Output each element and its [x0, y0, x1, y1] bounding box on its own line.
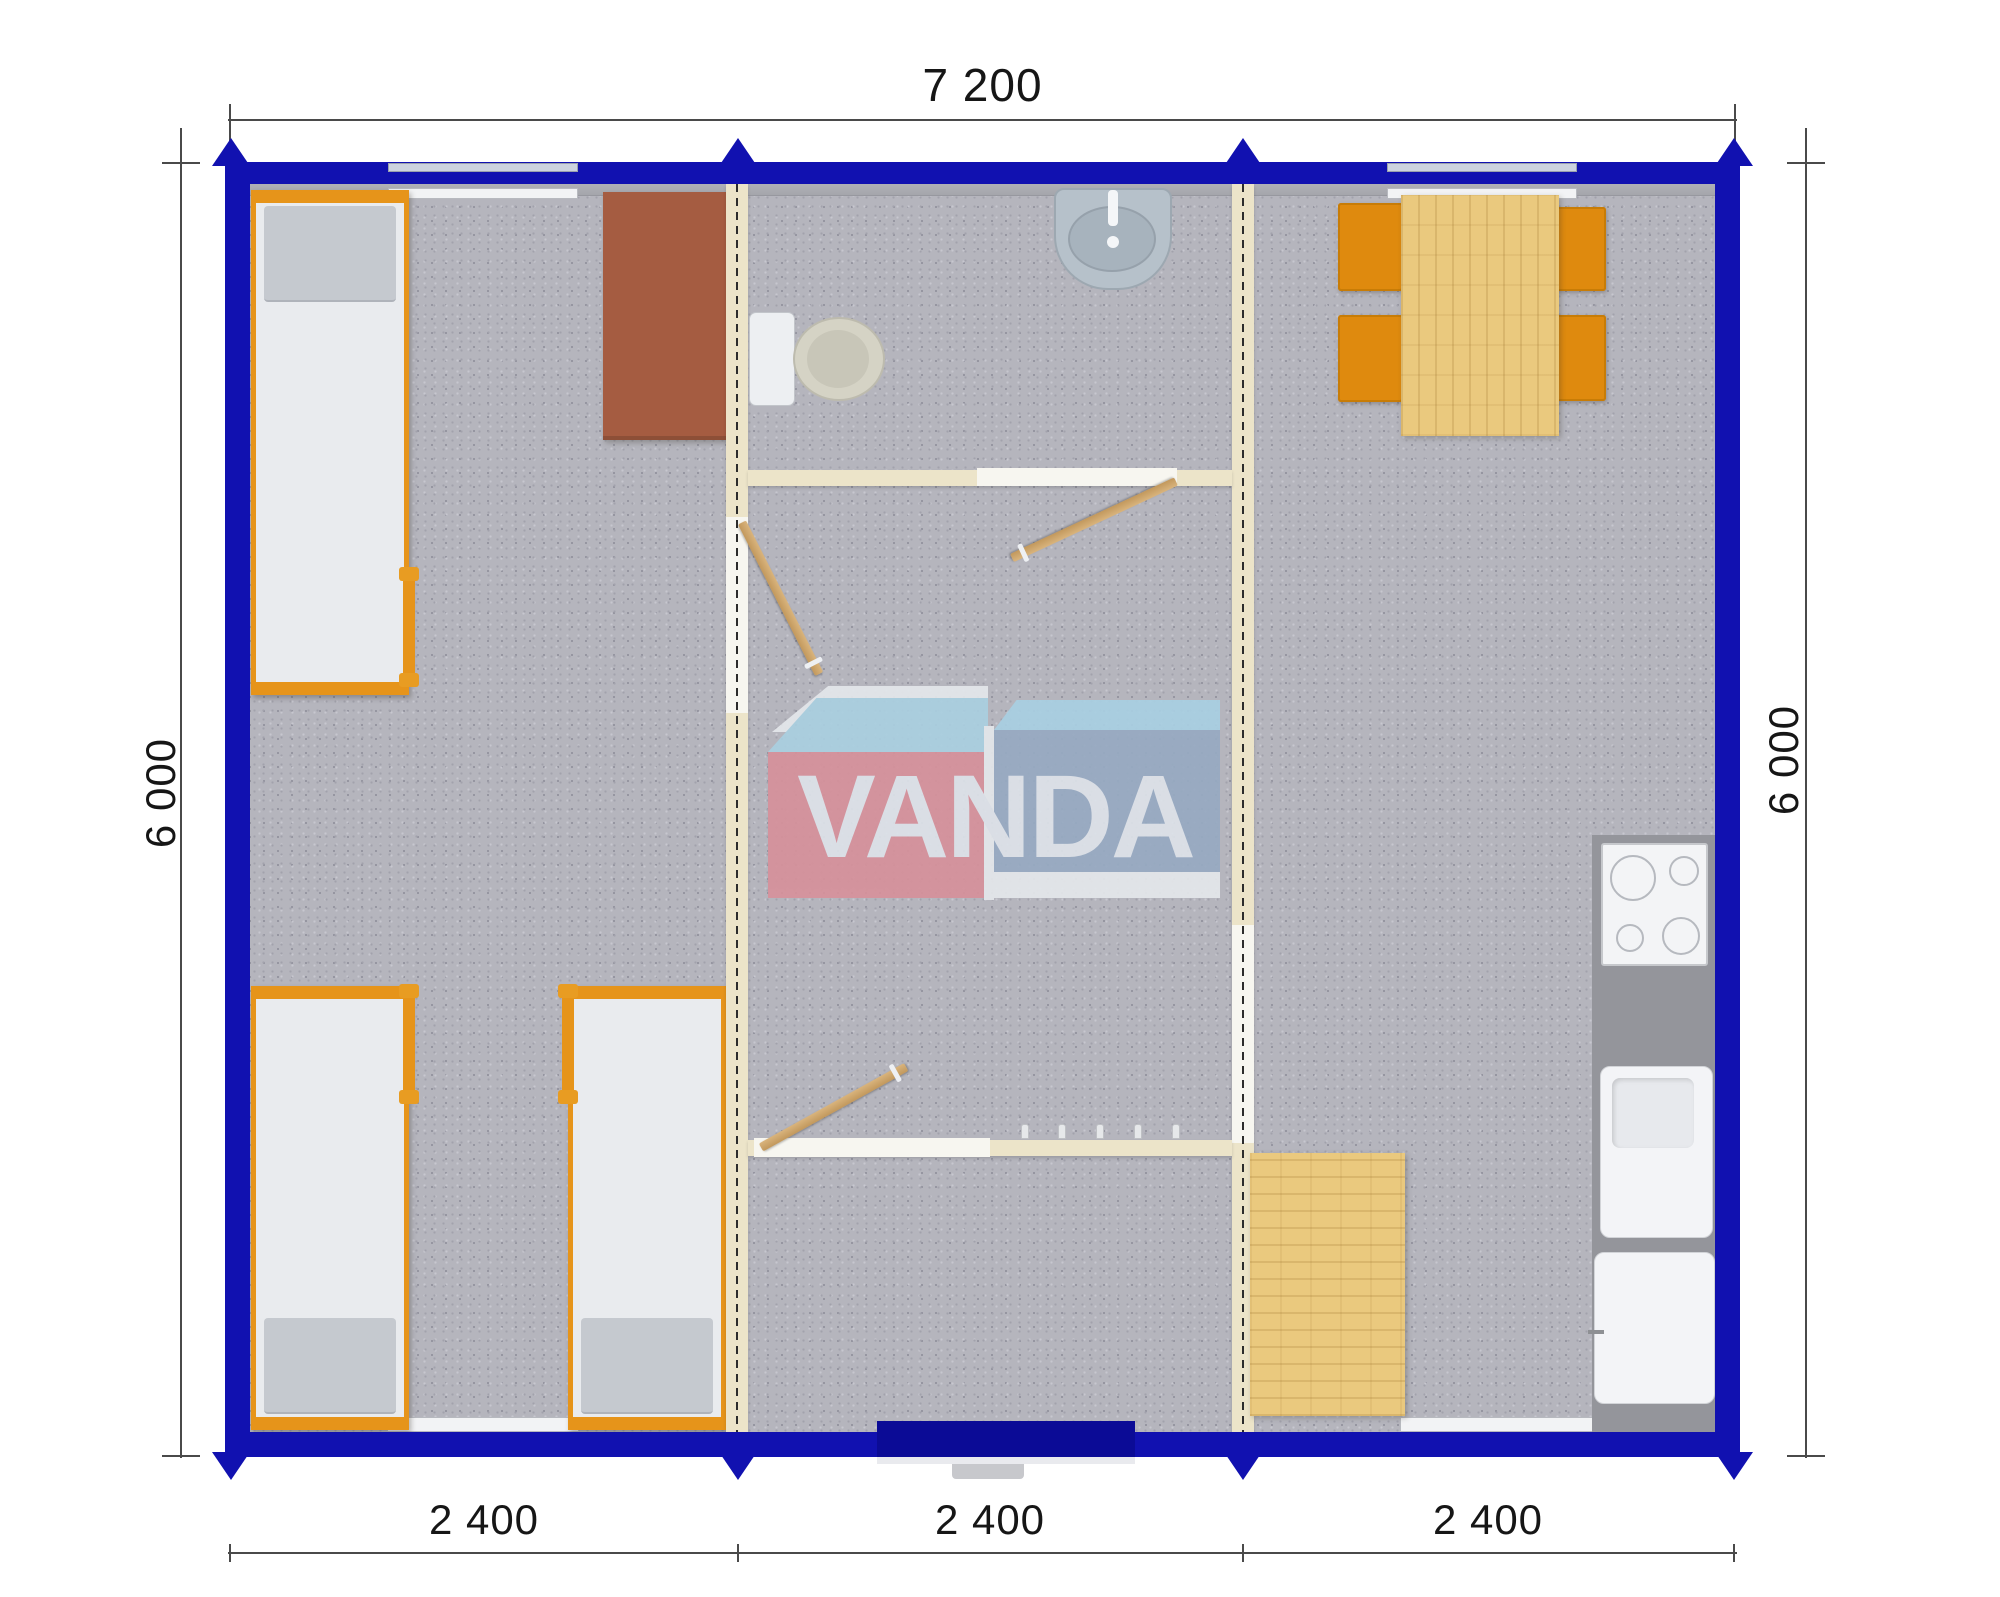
- logo-box-top-left: [768, 698, 988, 752]
- joint-arrow-bottom: [1224, 1452, 1262, 1480]
- coat-hook-icon: [1058, 1124, 1066, 1139]
- dim-tick-b3: [1242, 1544, 1244, 1562]
- chair-icon: [1338, 203, 1403, 291]
- bathroom-door-opening: [977, 468, 1177, 486]
- joint-arrow-bottom: [1715, 1452, 1753, 1480]
- side-table-icon: [1250, 1153, 1405, 1416]
- dim-line-bottom: [228, 1552, 1737, 1554]
- rail-nub: [558, 1090, 578, 1104]
- rail-nub: [399, 567, 419, 581]
- joint-arrow-bottom: [719, 1452, 757, 1480]
- joint-arrow-bottom: [212, 1452, 250, 1480]
- cabinet-handle: [1588, 1330, 1604, 1334]
- dim-tick-right-top: [1787, 162, 1825, 164]
- coat-hook-icon: [1021, 1124, 1029, 1139]
- hall-door-opening: [754, 1138, 990, 1157]
- dim-label-module-2: 2 400: [870, 1494, 1110, 1546]
- door-handle: [1017, 543, 1030, 562]
- bed-pillow: [264, 206, 396, 302]
- window-icon-top-left: [388, 163, 578, 172]
- window-sill-top-left: [388, 188, 578, 199]
- wardrobe-icon: [603, 192, 730, 440]
- chair-icon: [1338, 315, 1403, 402]
- entrance-door-icon: [877, 1421, 1135, 1457]
- dining-table-icon: [1401, 195, 1559, 436]
- stove-burner: [1616, 924, 1644, 952]
- faucet-icon: [1108, 190, 1118, 226]
- toilet-bowl-inner: [807, 330, 869, 388]
- rail-nub: [558, 984, 578, 998]
- window-sill-bottom-left: [387, 1417, 579, 1432]
- kitchen-cabinet-icon: [1594, 1252, 1715, 1404]
- joint-arrow-top: [1715, 138, 1753, 166]
- dim-tick-b1: [229, 1544, 231, 1562]
- logo-box-top-right: [994, 700, 1220, 730]
- bed-pillow: [581, 1318, 713, 1414]
- dim-line-top: [228, 119, 1737, 121]
- window-sill-bottom-right: [1400, 1417, 1601, 1432]
- toilet-icon: [749, 312, 795, 406]
- joint-arrow-top: [212, 138, 250, 166]
- rail-nub: [399, 1090, 419, 1104]
- dim-tick-b2: [737, 1544, 739, 1562]
- bed-ladder-rail: [403, 575, 415, 679]
- brand-name: VANDA: [770, 758, 1220, 876]
- dim-label-right-height: 6 000: [1760, 690, 1808, 830]
- stove-burner: [1669, 856, 1699, 886]
- outer-wall-right: [1715, 162, 1740, 1457]
- outer-wall-left: [225, 162, 250, 1457]
- stove-burner: [1610, 855, 1656, 901]
- rail-nub: [399, 673, 419, 687]
- floor-plan-page: 7 200 6 000 6 000 2 400 2 400 2 400: [0, 0, 2000, 1597]
- brand-logo: VANDA: [755, 680, 1235, 910]
- entrance-threshold: [877, 1457, 1135, 1464]
- module-joint-dashed-line: [1242, 184, 1244, 1432]
- bed-pillow: [264, 1318, 396, 1414]
- dim-tick-b4: [1733, 1544, 1735, 1562]
- joint-arrow-top: [719, 138, 757, 166]
- dim-label-module-3: 2 400: [1368, 1494, 1608, 1546]
- rail-nub: [399, 984, 419, 998]
- door-handle: [888, 1064, 902, 1083]
- faucet-dot: [1107, 236, 1119, 248]
- stove-burner: [1662, 917, 1700, 955]
- dim-tick-left-top: [162, 162, 200, 164]
- dim-label-module-1: 2 400: [364, 1494, 604, 1546]
- bed-ladder-rail: [403, 992, 415, 1096]
- kitchen-sink-basin: [1612, 1078, 1694, 1148]
- joint-arrow-top: [1224, 138, 1262, 166]
- module-joint-dashed-line: [736, 184, 738, 1432]
- dim-label-left-height: 6 000: [137, 723, 185, 863]
- dim-tick-left-bottom: [162, 1455, 200, 1457]
- dim-tick-right-bottom: [1787, 1455, 1825, 1457]
- coat-hook-icon: [1096, 1124, 1104, 1139]
- bed-ladder-rail: [562, 992, 574, 1096]
- window-icon-top-right: [1387, 163, 1577, 172]
- coat-hook-icon: [1134, 1124, 1142, 1139]
- dim-label-top-width: 7 200: [228, 58, 1737, 112]
- coat-hook-icon: [1172, 1124, 1180, 1139]
- entrance-step: [952, 1464, 1024, 1479]
